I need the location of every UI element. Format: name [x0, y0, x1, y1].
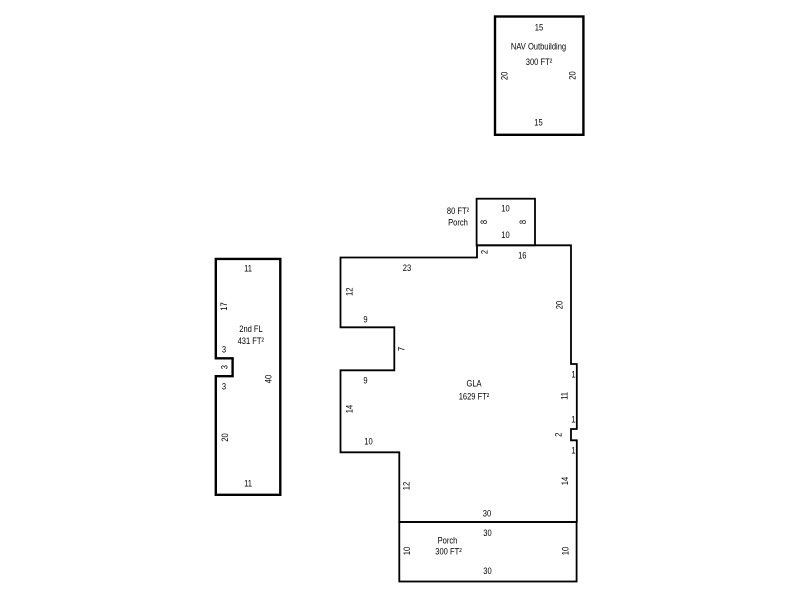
svg-text:16: 16 [518, 250, 527, 261]
svg-text:12: 12 [401, 481, 412, 490]
svg-text:2: 2 [553, 432, 564, 437]
svg-text:9: 9 [363, 314, 368, 325]
svg-text:Porch: Porch [438, 535, 458, 546]
svg-text:11: 11 [559, 392, 570, 400]
svg-text:1629 FT²: 1629 FT² [459, 391, 490, 402]
svg-text:20: 20 [567, 71, 578, 80]
svg-text:17: 17 [219, 302, 230, 311]
svg-text:GLA: GLA [466, 378, 482, 389]
svg-text:11: 11 [244, 263, 252, 274]
svg-text:8: 8 [518, 220, 529, 225]
svg-text:20: 20 [220, 433, 231, 442]
svg-text:NAV Outbuilding: NAV Outbuilding [511, 41, 567, 52]
svg-text:1: 1 [571, 414, 576, 425]
svg-text:14: 14 [560, 476, 571, 485]
svg-text:2: 2 [479, 250, 490, 255]
svg-text:11: 11 [244, 478, 252, 489]
svg-text:300 FT²: 300 FT² [435, 546, 462, 557]
svg-text:10: 10 [364, 436, 373, 447]
svg-text:40: 40 [263, 374, 274, 383]
svg-text:3: 3 [219, 365, 230, 370]
svg-text:1: 1 [571, 369, 576, 380]
svg-text:12: 12 [344, 287, 355, 296]
svg-text:10: 10 [402, 546, 413, 555]
svg-text:8: 8 [479, 220, 490, 225]
svg-text:80 FT²: 80 FT² [447, 205, 469, 216]
svg-text:10: 10 [501, 203, 510, 214]
svg-text:Porch: Porch [448, 217, 468, 228]
svg-text:14: 14 [344, 404, 355, 413]
svg-text:15: 15 [535, 22, 544, 33]
svg-text:30: 30 [483, 566, 492, 577]
svg-text:7: 7 [396, 347, 407, 352]
svg-text:10: 10 [560, 546, 571, 555]
svg-text:431 FT²: 431 FT² [238, 335, 265, 346]
svg-text:20: 20 [554, 300, 565, 309]
svg-text:9: 9 [363, 375, 368, 386]
svg-text:30: 30 [483, 508, 492, 519]
svg-text:300 FT²: 300 FT² [526, 56, 553, 67]
svg-text:15: 15 [534, 117, 543, 128]
svg-text:30: 30 [483, 528, 492, 539]
svg-text:10: 10 [501, 230, 510, 241]
svg-text:23: 23 [403, 263, 412, 274]
svg-text:2nd FL: 2nd FL [239, 323, 263, 334]
svg-text:3: 3 [222, 381, 227, 392]
svg-text:3: 3 [222, 344, 227, 355]
svg-text:1: 1 [571, 445, 576, 456]
svg-text:20: 20 [499, 71, 510, 80]
